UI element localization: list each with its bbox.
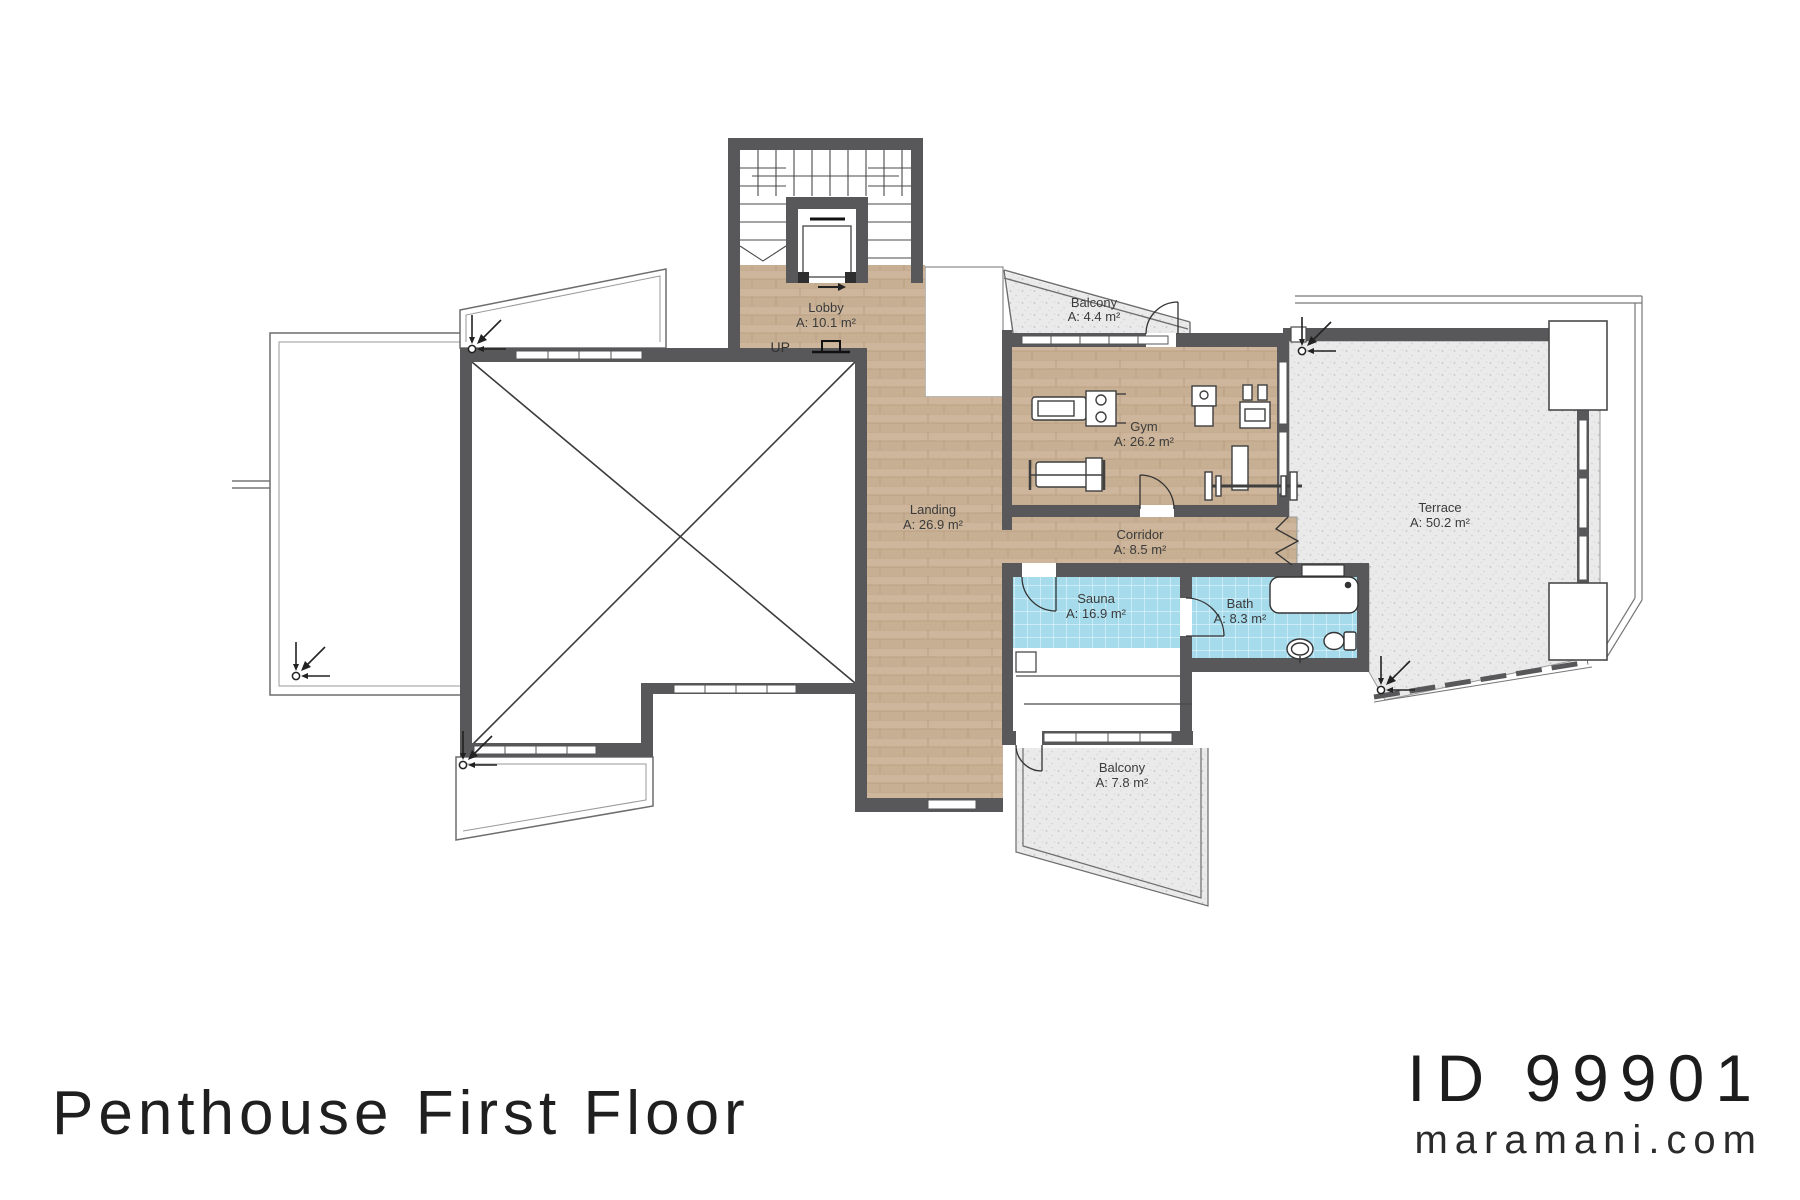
sauna-bath-divider-a xyxy=(1180,577,1192,598)
elevator-car xyxy=(803,226,851,277)
weight-rack-small xyxy=(1192,386,1216,426)
bath-niche xyxy=(1302,565,1344,576)
bath-wall-east xyxy=(1357,563,1369,672)
area-landing: A: 26.9 m² xyxy=(903,517,964,532)
label-landing: Landing xyxy=(910,502,956,517)
area-balcony-bottom: A: 7.8 m² xyxy=(1096,775,1149,790)
plan-title: Penthouse First Floor xyxy=(52,1078,750,1149)
landing-wall-west-lower xyxy=(855,694,867,806)
sauna-bath-divider-b xyxy=(1180,636,1192,731)
page: Lobby A: 10.1 m² Landing A: 26.9 m² Gym … xyxy=(0,0,1800,1200)
void-wall-step xyxy=(641,683,653,757)
label-bath: Bath xyxy=(1227,596,1254,611)
toilet xyxy=(1324,632,1356,650)
label-gym: Gym xyxy=(1130,419,1157,434)
terrace-block-se xyxy=(1549,583,1607,660)
elevator xyxy=(786,197,868,283)
area-balcony-top: A: 4.4 m² xyxy=(1068,309,1121,324)
area-gym: A: 26.2 m² xyxy=(1114,434,1175,449)
void-wall-left xyxy=(460,348,472,757)
gym-wall-west xyxy=(1002,330,1012,530)
label-balcony-top: Balcony xyxy=(1071,295,1118,310)
area-lobby: A: 10.1 m² xyxy=(796,315,857,330)
sauna-heater xyxy=(1016,652,1036,672)
area-sauna: A: 16.9 m² xyxy=(1066,606,1127,621)
landing-floor xyxy=(867,362,1003,812)
label-terrace: Terrace xyxy=(1418,500,1461,515)
stair-break-line xyxy=(740,246,786,261)
label-sauna: Sauna xyxy=(1077,591,1115,606)
sauna-benches xyxy=(1013,648,1192,731)
label-corridor: Corridor xyxy=(1117,527,1165,542)
bathtub-faucet xyxy=(1345,582,1350,587)
roof-edge-left xyxy=(232,481,270,488)
area-corridor: A: 8.5 m² xyxy=(1114,542,1167,557)
plan-id: ID 99901 xyxy=(1407,1040,1763,1116)
plan-website: maramani.com xyxy=(1414,1118,1763,1163)
area-bath: A: 8.3 m² xyxy=(1214,611,1267,626)
label-up: UP xyxy=(771,339,790,355)
label-lobby: Lobby xyxy=(808,300,844,315)
roof-notch xyxy=(925,267,1003,397)
bathtub xyxy=(1270,577,1358,613)
bath-wall-south xyxy=(1183,658,1369,672)
terrace-block-ne xyxy=(1549,321,1607,410)
area-terrace: A: 50.2 m² xyxy=(1410,515,1471,530)
label-balcony-bottom: Balcony xyxy=(1099,760,1146,775)
exercise-bench xyxy=(1030,458,1104,491)
roof-left-inner xyxy=(279,342,463,686)
stair-wall-right xyxy=(911,138,923,283)
floor-plan-svg: Lobby A: 10.1 m² Landing A: 26.9 m² Gym … xyxy=(0,0,1800,1200)
stair-wall-left xyxy=(728,138,740,356)
stair-wall-top xyxy=(728,138,923,150)
sauna-wall-west xyxy=(1002,563,1013,745)
landing-wall-west-upper xyxy=(855,362,867,683)
